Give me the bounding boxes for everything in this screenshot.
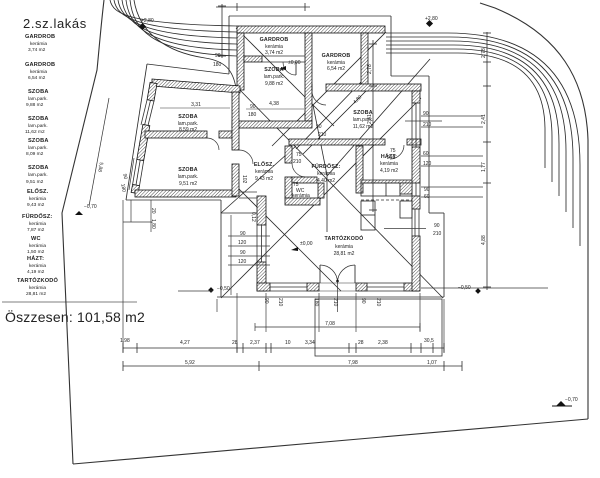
svg-text:1,98: 1,98: [120, 338, 130, 344]
svg-text:SZOBA: SZOBA: [264, 67, 284, 73]
svg-text:GARDROB: GARDROB: [25, 34, 55, 40]
svg-text:210: 210: [318, 132, 327, 138]
svg-text:6,54 m2: 6,54 m2: [28, 75, 46, 81]
svg-text:GARDROB: GARDROB: [260, 37, 289, 43]
svg-text:210: 210: [332, 298, 338, 307]
svg-text:FÜRDŐSZ:: FÜRDŐSZ:: [312, 163, 341, 170]
svg-text:11,62 m2: 11,62 m2: [25, 129, 45, 135]
svg-text:lam.park.: lam.park.: [28, 123, 48, 129]
svg-text:+2,80: +2,80: [425, 16, 438, 22]
svg-text:2,41: 2,41: [367, 114, 373, 124]
svg-text:210: 210: [387, 155, 396, 161]
svg-text:5,92: 5,92: [185, 360, 195, 366]
svg-text:ELŐSZ.: ELŐSZ.: [254, 161, 275, 168]
svg-text:kerámia: kerámia: [29, 243, 46, 249]
svg-text:GARDROB: GARDROB: [322, 53, 351, 59]
svg-text:9,88 m2: 9,88 m2: [265, 81, 283, 87]
svg-text:lam.park.: lam.park.: [264, 74, 285, 80]
svg-text:kerámia: kerámia: [29, 263, 46, 269]
svg-text:kerámia: kerámia: [317, 171, 335, 177]
svg-text:kerámia: kerámia: [255, 169, 273, 175]
svg-text:9,43 m2: 9,43 m2: [255, 176, 273, 182]
svg-text:90: 90: [434, 223, 440, 229]
svg-text:lam.park.: lam.park.: [28, 172, 48, 178]
svg-text:−0,70: −0,70: [84, 204, 97, 210]
svg-text:1,80: 1,80: [150, 219, 156, 229]
svg-text:6,54 m2: 6,54 m2: [327, 66, 345, 72]
svg-text:30,5: 30,5: [424, 338, 434, 344]
svg-text:50: 50: [316, 124, 322, 130]
svg-text:2.sz.lakás: 2.sz.lakás: [23, 16, 87, 31]
svg-text:±0,00: ±0,00: [288, 60, 301, 66]
svg-text:2,41: 2,41: [481, 114, 487, 124]
svg-text:4,40 m2: 4,40 m2: [317, 178, 335, 184]
svg-text:4,38: 4,38: [269, 101, 279, 107]
svg-text:TARTÓZKODÓ: TARTÓZKODÓ: [325, 234, 364, 242]
svg-text:20: 20: [150, 208, 156, 214]
svg-text:3,34: 3,34: [305, 340, 315, 346]
svg-text:9,51 m2: 9,51 m2: [179, 181, 197, 187]
svg-text:kerámia: kerámia: [30, 41, 47, 47]
svg-text:TARTÓZKODÓ: TARTÓZKODÓ: [17, 276, 58, 284]
svg-text:3,31: 3,31: [191, 102, 201, 108]
svg-text:kerámia: kerámia: [292, 193, 310, 199]
svg-text:0,12: 0,12: [250, 212, 256, 222]
svg-text:kerámia: kerámia: [29, 221, 46, 227]
svg-text:WC: WC: [31, 236, 41, 242]
svg-text:kerámia: kerámia: [380, 161, 398, 167]
svg-text:SZOBA: SZOBA: [178, 167, 198, 173]
svg-text:180: 180: [213, 62, 222, 68]
svg-text:75: 75: [390, 148, 396, 154]
svg-text:90: 90: [240, 250, 246, 256]
svg-text:4,27: 4,27: [180, 340, 190, 346]
svg-text:9,43 m2: 9,43 m2: [27, 202, 45, 208]
svg-text:±0,00: ±0,00: [300, 241, 313, 247]
svg-text:7,98: 7,98: [348, 360, 358, 366]
svg-text:GARDROB: GARDROB: [25, 62, 55, 68]
svg-text:Öszzesen: 101,58 m2: Öszzesen: 101,58 m2: [5, 308, 145, 325]
svg-text:FÜRDŐSZ:: FÜRDŐSZ:: [22, 213, 53, 220]
svg-text:210: 210: [293, 159, 302, 165]
svg-text:7,08: 7,08: [325, 321, 335, 327]
svg-text:28,81 m2: 28,81 m2: [26, 291, 46, 297]
svg-text:90: 90: [360, 298, 366, 304]
svg-text:3,74 m2: 3,74 m2: [28, 47, 46, 53]
svg-text:120: 120: [238, 240, 247, 246]
svg-text:SZOBA: SZOBA: [28, 138, 49, 144]
svg-text:9,88 m2: 9,88 m2: [26, 102, 44, 108]
svg-text:−0,50: −0,50: [217, 286, 230, 292]
svg-text:+2,80: +2,80: [141, 18, 154, 24]
svg-text:7,87 m2: 7,87 m2: [27, 227, 45, 233]
svg-text:SZOBA: SZOBA: [28, 116, 49, 122]
svg-text:lam.park.: lam.park.: [178, 174, 199, 180]
svg-text:SZOBA: SZOBA: [178, 114, 198, 120]
svg-text:2,78: 2,78: [481, 48, 487, 58]
svg-text:8,59 m2: 8,59 m2: [179, 127, 197, 133]
svg-text:210: 210: [433, 231, 442, 237]
svg-text:75: 75: [296, 152, 302, 158]
svg-text:kerámia: kerámia: [29, 196, 46, 202]
svg-text:180: 180: [313, 298, 319, 307]
svg-text:ELŐSZ.: ELŐSZ.: [27, 188, 49, 195]
svg-text:9,51 m2: 9,51 m2: [26, 179, 44, 185]
svg-text:kerámia: kerámia: [30, 69, 47, 75]
svg-text:10: 10: [285, 340, 291, 346]
svg-text:SZOBA: SZOBA: [28, 89, 49, 95]
svg-text:28: 28: [358, 340, 364, 346]
svg-text:102: 102: [241, 175, 247, 184]
svg-text:8,09 m2: 8,09 m2: [26, 151, 44, 157]
svg-text:1,07: 1,07: [427, 360, 437, 366]
svg-text:28: 28: [232, 340, 238, 346]
svg-text:lam.park.: lam.park.: [28, 96, 48, 102]
svg-text:HÁZT:: HÁZT:: [27, 255, 44, 262]
svg-text:180: 180: [248, 112, 257, 118]
svg-text:210: 210: [277, 298, 283, 307]
svg-text:kerámia: kerámia: [335, 244, 353, 250]
svg-text:90: 90: [424, 187, 430, 193]
svg-text:−0,70: −0,70: [565, 397, 578, 403]
svg-text:2,38: 2,38: [378, 340, 388, 346]
svg-text:4,88: 4,88: [481, 235, 487, 245]
svg-text:90: 90: [215, 53, 221, 59]
svg-text:1,50 m2: 1,50 m2: [27, 249, 45, 255]
svg-text:210: 210: [375, 298, 381, 307]
svg-text:1,77: 1,77: [481, 162, 487, 172]
svg-text:SZOBA: SZOBA: [28, 165, 49, 171]
svg-text:3,74 m2: 3,74 m2: [265, 50, 283, 56]
svg-text:28,81 m2: 28,81 m2: [334, 251, 355, 257]
svg-text:2,78: 2,78: [367, 64, 373, 74]
svg-text:4,19 m2: 4,19 m2: [380, 168, 398, 174]
svg-text:2,37: 2,37: [250, 340, 260, 346]
svg-text:120: 120: [238, 259, 247, 265]
svg-text:kerámia: kerámia: [29, 285, 46, 291]
svg-text:4,19 m2: 4,19 m2: [27, 269, 45, 275]
svg-text:lam.park.: lam.park.: [28, 145, 48, 151]
